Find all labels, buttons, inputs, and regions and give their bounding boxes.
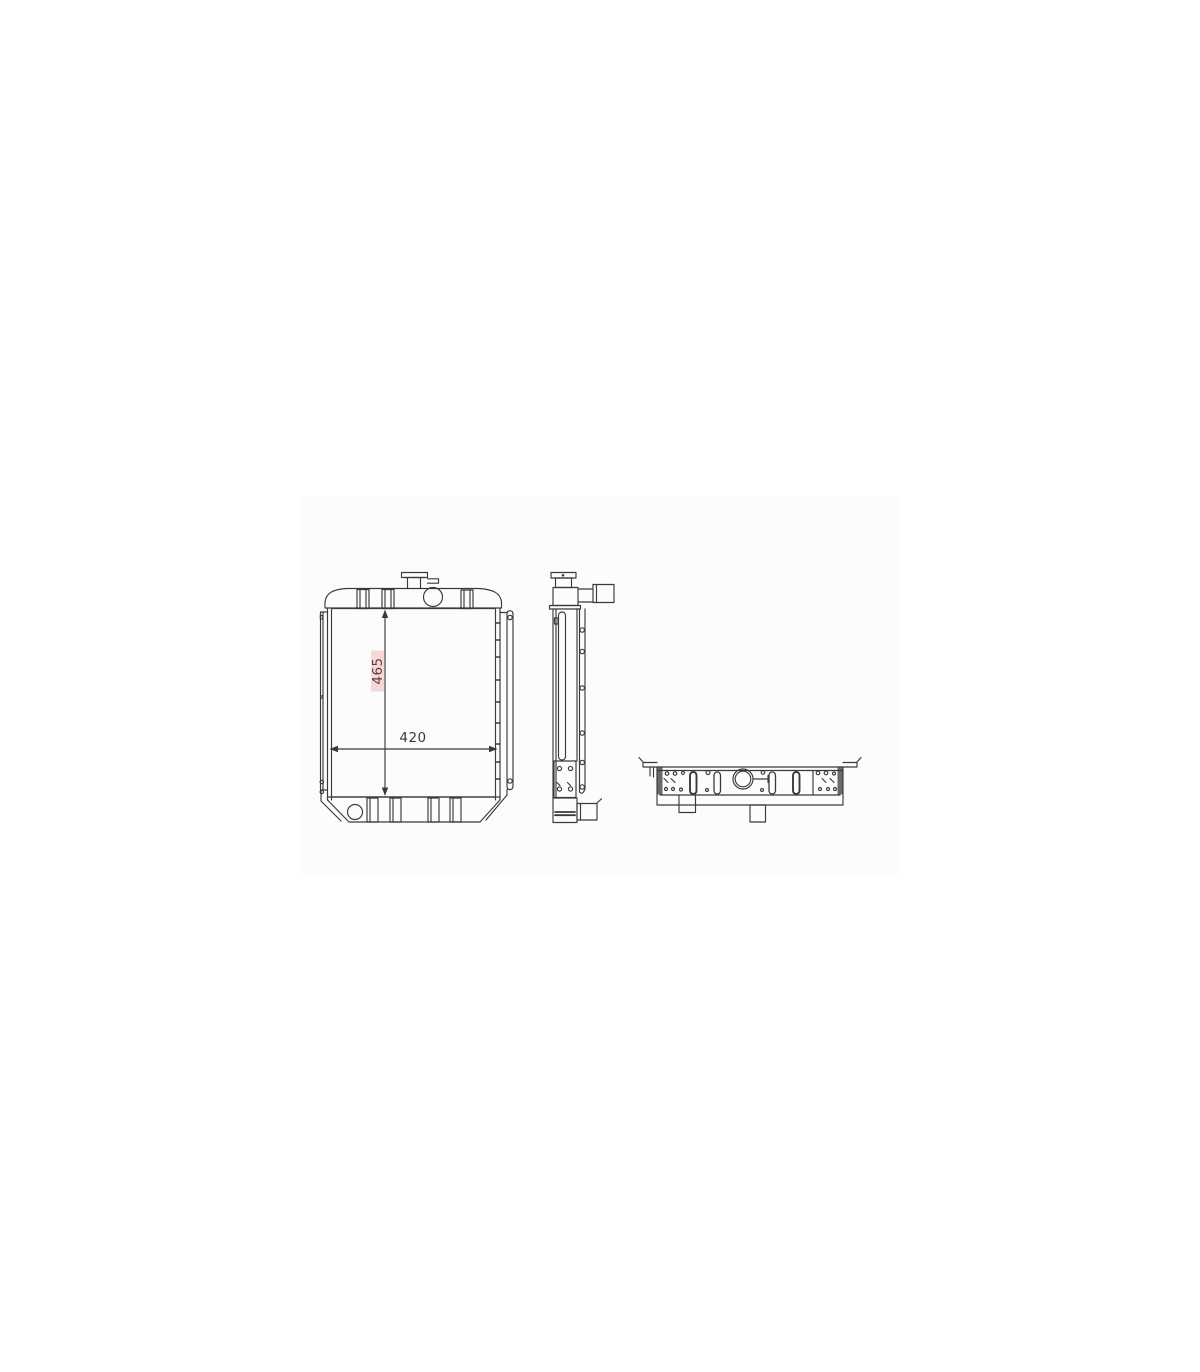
right-end-cap — [838, 768, 843, 795]
left-end-cap — [658, 768, 663, 795]
dimension-width-label: 420 — [399, 730, 426, 746]
radiator-three-view-drawing: 465 420 — [0, 0, 1200, 1372]
dimension-height-label: 465 — [370, 657, 386, 684]
drawing-canvas: 465 420 — [0, 0, 1200, 1372]
